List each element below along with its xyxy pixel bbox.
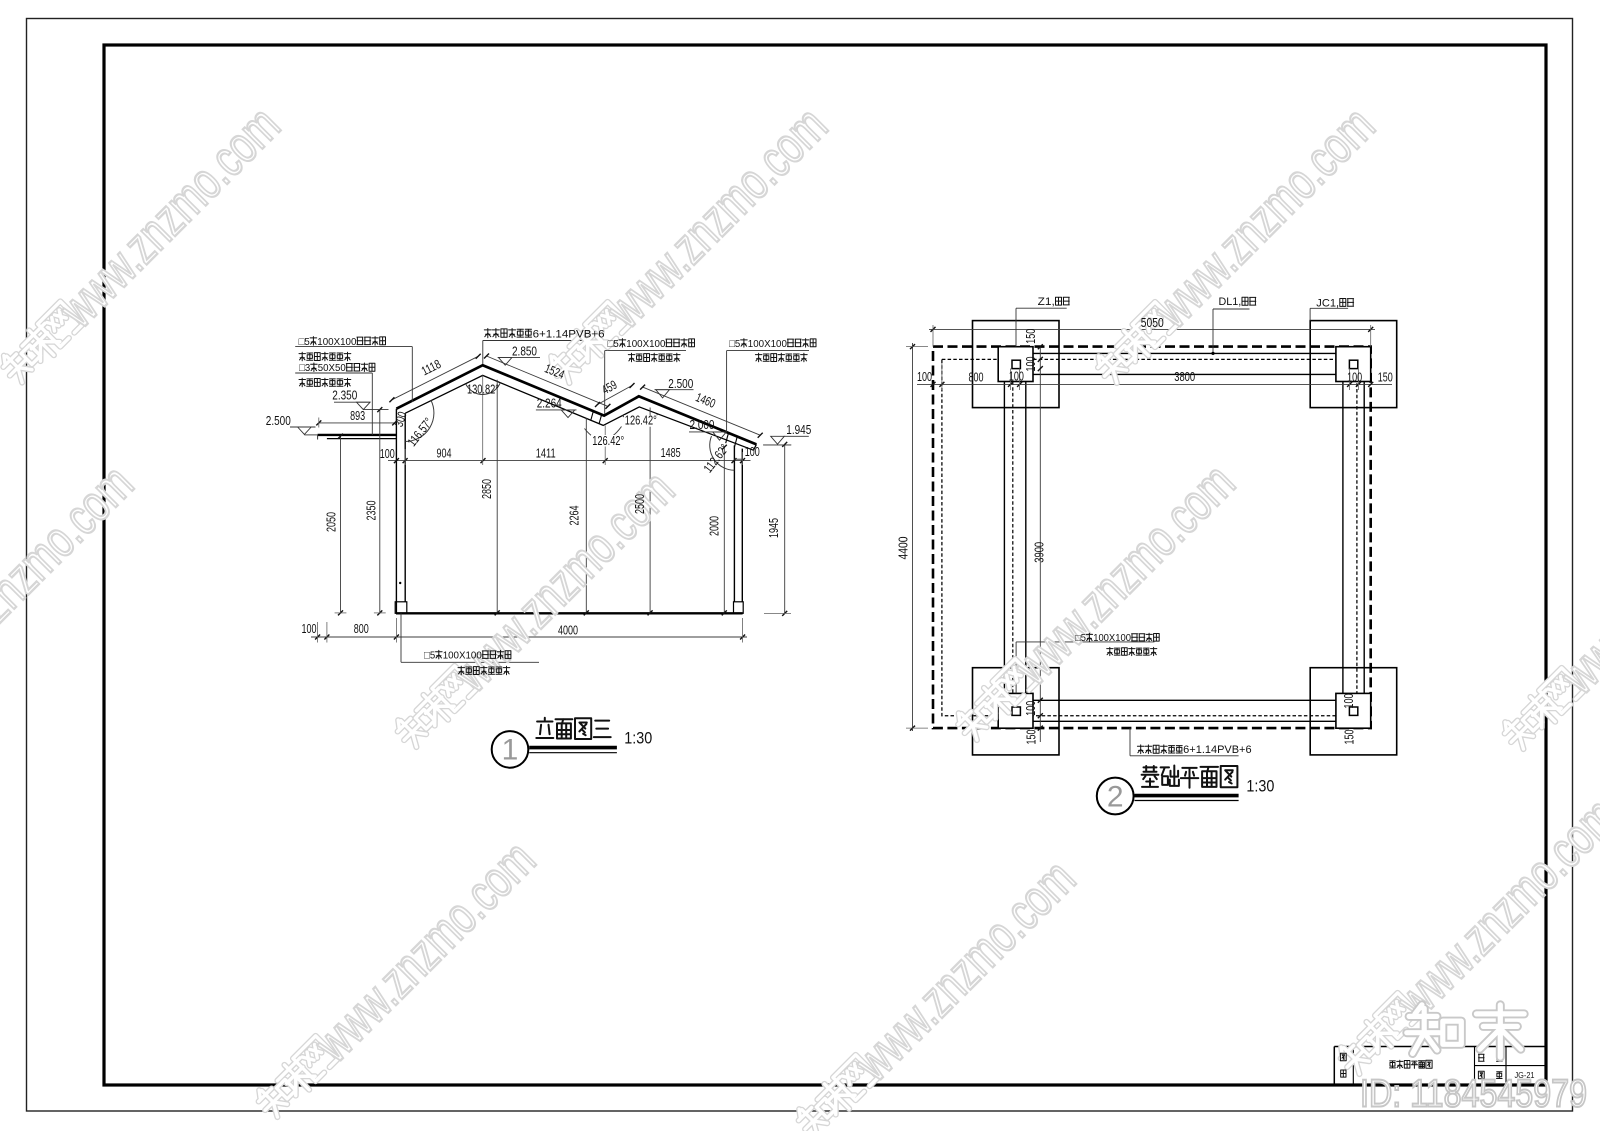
svg-text:6+1.14PVB+6: 6+1.14PVB+6 bbox=[1183, 744, 1252, 756]
svg-text:4000: 4000 bbox=[558, 623, 578, 637]
svg-text:130.82°: 130.82° bbox=[467, 382, 499, 396]
svg-text:2.500: 2.500 bbox=[266, 413, 291, 428]
svg-text:2.500: 2.500 bbox=[668, 376, 693, 391]
svg-text:1: 1 bbox=[502, 734, 519, 767]
svg-text:6+1.14PVB+6: 6+1.14PVB+6 bbox=[533, 328, 605, 340]
svg-text:100: 100 bbox=[1009, 369, 1024, 383]
svg-text:100: 100 bbox=[1347, 370, 1362, 384]
svg-text:100X100: 100X100 bbox=[1093, 633, 1131, 644]
svg-text:100: 100 bbox=[745, 445, 760, 459]
svg-text:100: 100 bbox=[917, 370, 932, 384]
svg-text:50X50: 50X50 bbox=[318, 363, 346, 374]
svg-text:800: 800 bbox=[354, 622, 369, 636]
svg-text:2000: 2000 bbox=[708, 516, 722, 536]
svg-text:□5: □5 bbox=[729, 339, 740, 350]
svg-text:2500: 2500 bbox=[633, 494, 647, 514]
svg-text:150: 150 bbox=[1342, 730, 1356, 745]
svg-text:100: 100 bbox=[302, 622, 317, 636]
svg-text:150: 150 bbox=[1024, 730, 1038, 745]
svg-text:100: 100 bbox=[1342, 694, 1356, 709]
svg-text:2.000: 2.000 bbox=[690, 417, 715, 432]
svg-text:4400: 4400 bbox=[897, 537, 911, 560]
svg-text:□5: □5 bbox=[299, 337, 310, 348]
svg-text:100X100: 100X100 bbox=[443, 651, 482, 662]
svg-text:□5: □5 bbox=[608, 339, 619, 350]
svg-text:100: 100 bbox=[1024, 701, 1038, 716]
svg-text:1411: 1411 bbox=[536, 446, 556, 460]
svg-text:100: 100 bbox=[1024, 357, 1038, 372]
svg-text:100: 100 bbox=[380, 447, 395, 461]
svg-text:126.42°: 126.42° bbox=[625, 414, 657, 428]
svg-text:800: 800 bbox=[969, 370, 984, 384]
svg-text:2: 2 bbox=[1107, 781, 1124, 814]
svg-text:2264: 2264 bbox=[568, 506, 582, 526]
svg-text:2.264: 2.264 bbox=[537, 395, 562, 410]
svg-text:100X100: 100X100 bbox=[626, 339, 665, 350]
svg-text:150: 150 bbox=[1378, 371, 1393, 385]
svg-text:100X100: 100X100 bbox=[317, 337, 356, 348]
svg-text:3800: 3800 bbox=[1174, 370, 1195, 384]
svg-text:□5: □5 bbox=[1075, 633, 1086, 644]
svg-text:1945: 1945 bbox=[767, 518, 781, 538]
svg-text:2.350: 2.350 bbox=[332, 388, 357, 403]
svg-text:ID: 1184545979: ID: 1184545979 bbox=[1360, 1073, 1587, 1116]
svg-text:1:30: 1:30 bbox=[624, 729, 652, 747]
svg-text:DL1,: DL1, bbox=[1219, 296, 1242, 308]
svg-text:Z1,: Z1, bbox=[1038, 296, 1055, 308]
svg-text:3900: 3900 bbox=[1033, 542, 1047, 563]
svg-text:5050: 5050 bbox=[1141, 316, 1164, 330]
svg-text:1485: 1485 bbox=[661, 446, 681, 460]
svg-text:126.42°: 126.42° bbox=[592, 434, 624, 448]
svg-text:□3: □3 bbox=[299, 363, 310, 374]
svg-text:904: 904 bbox=[437, 447, 452, 461]
svg-text:893: 893 bbox=[350, 409, 365, 423]
svg-text:JC1,: JC1, bbox=[1316, 297, 1339, 309]
svg-text:1.945: 1.945 bbox=[786, 422, 811, 437]
svg-text:2850: 2850 bbox=[480, 479, 494, 499]
svg-text:2.850: 2.850 bbox=[512, 344, 537, 359]
svg-text:150: 150 bbox=[1024, 329, 1038, 344]
svg-text:2350: 2350 bbox=[364, 501, 378, 521]
svg-text:100X100: 100X100 bbox=[748, 339, 787, 350]
svg-text:2050: 2050 bbox=[324, 512, 338, 532]
svg-text:1:30: 1:30 bbox=[1246, 778, 1274, 796]
svg-text:□5: □5 bbox=[424, 651, 435, 662]
